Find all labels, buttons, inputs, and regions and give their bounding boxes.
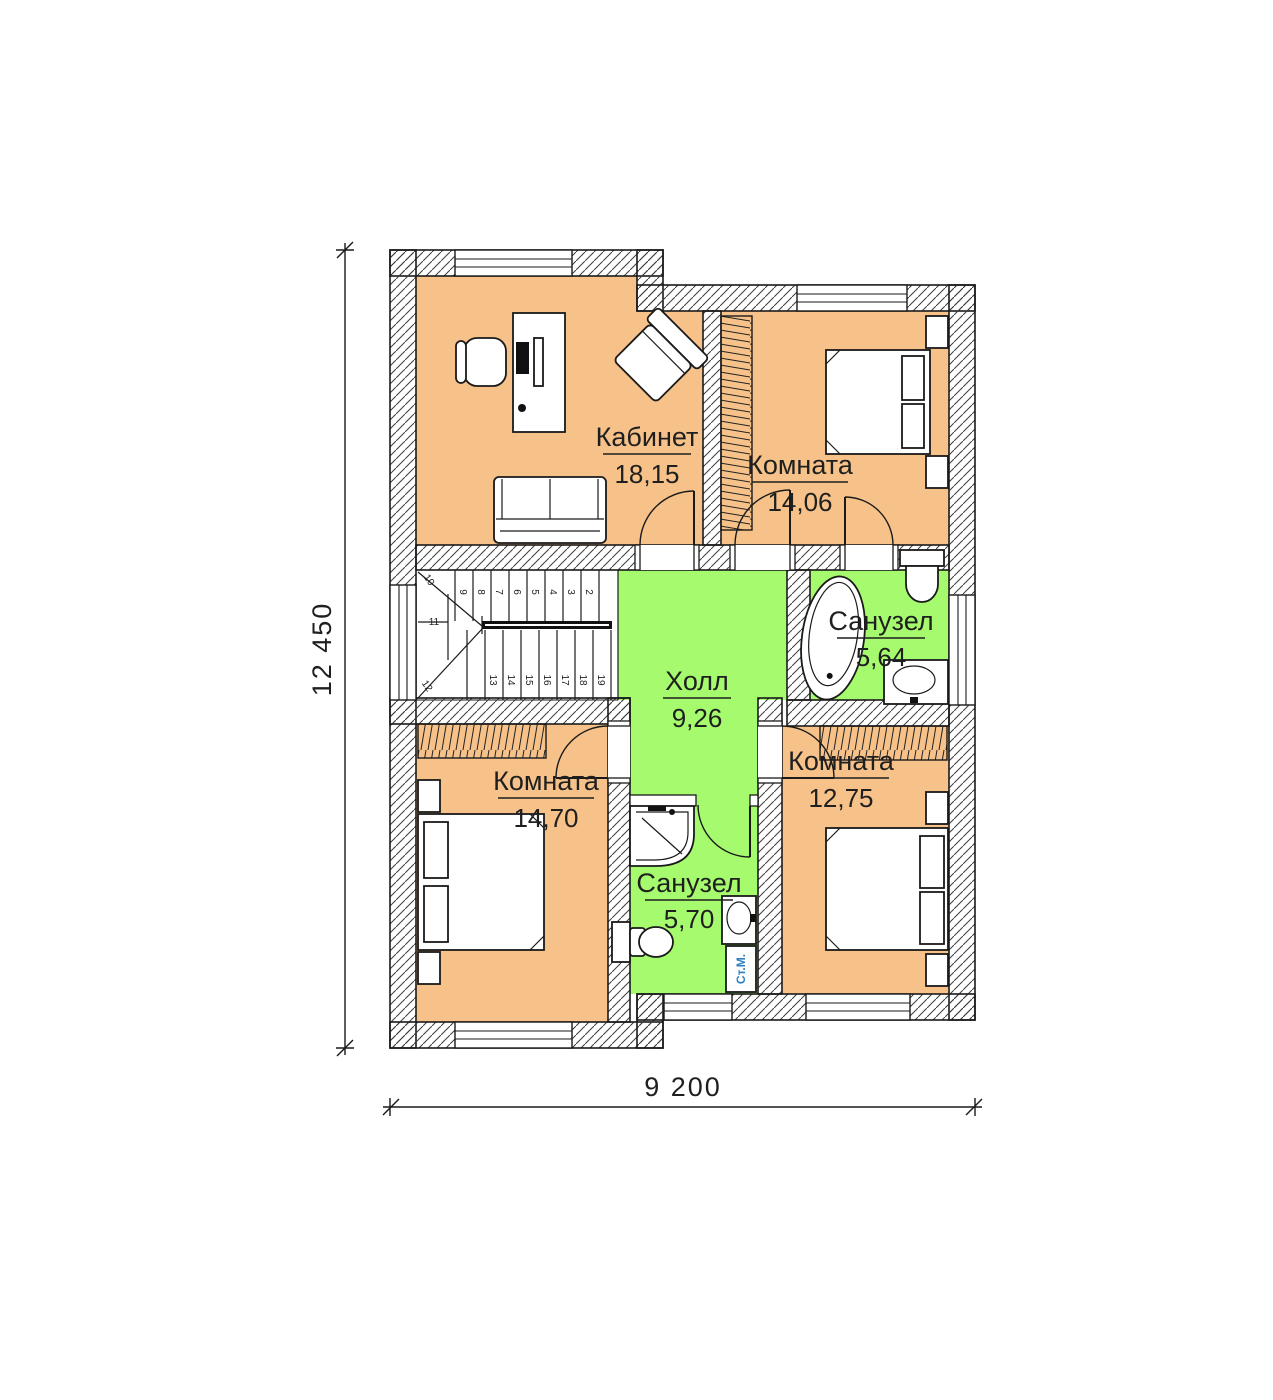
step-number: 8 [475,589,486,595]
mouse-icon [518,404,526,412]
sink-icon [722,896,756,944]
step-number: 7 [493,589,504,595]
wardrobe-bedroom-top [721,316,752,530]
room-name: Санузел [828,606,933,636]
room-name: Холл [665,666,729,696]
room-name: Комната [493,766,600,796]
step-number: 11 [429,617,440,628]
dimension-height-label: 12 450 [307,602,337,697]
window-office-top [455,250,572,276]
step-number: 14 [505,674,516,686]
step-number: 15 [523,674,534,686]
wall-office-bedroom [703,311,721,545]
room-area: 9,26 [672,703,723,733]
window-bedroom-top [797,285,907,311]
room-name: Комната [747,450,854,480]
step-number: 4 [547,589,558,595]
monitor-icon [534,338,543,386]
wardrobe-bedroom-left [418,724,546,758]
keyboard-icon [516,342,529,374]
room-area: 5,70 [664,904,715,934]
window-bath-right [949,595,975,705]
step-number: 3 [565,589,576,595]
window-bedroom-left-bottom [455,1022,572,1048]
step-number: 5 [529,589,540,595]
wall-under-stairs [390,698,630,724]
step-number: 17 [559,674,570,686]
floor-plan-svg: 9 8 7 6 5 4 3 2 13 14 15 16 17 18 19 10 … [0,0,1273,1400]
room-area: 5,64 [856,642,907,672]
window-stairs-left [390,585,416,700]
shower-icon [630,806,694,866]
room-area: 18,15 [614,459,679,489]
room-name: Комната [788,746,895,776]
step-number: 19 [595,674,606,686]
washing-machine-label: Ст.М. [734,954,748,984]
room-area: 14,06 [767,487,832,517]
step-number: 6 [511,589,522,595]
room-area: 14,70 [513,803,578,833]
washing-machine-icon: Ст.М. [726,946,756,992]
room-name: Санузел [636,868,741,898]
window-bath-bottom [664,994,732,1020]
room-area: 12,75 [808,783,873,813]
office-chair-icon [456,338,506,386]
window-bedroom-right-bottom [806,994,910,1020]
step-number: 13 [487,674,498,686]
dimension-width-label: 9 200 [644,1072,722,1102]
step-number: 9 [457,589,468,595]
step-number: 2 [583,589,594,595]
sofa-icon [494,477,606,543]
step-number: 16 [541,674,552,686]
room-name: Кабинет [596,422,699,452]
step-number: 18 [577,674,588,686]
